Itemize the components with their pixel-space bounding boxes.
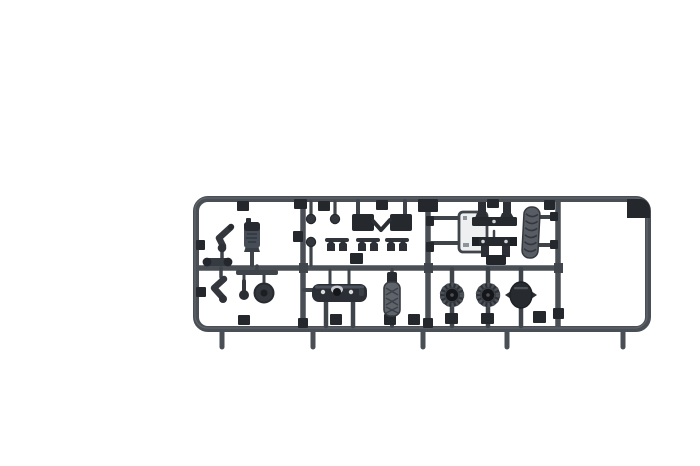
photo-background (0, 0, 700, 466)
photo-canvas: Dark grey plastic scale-model sprue (inj… (0, 0, 700, 466)
part-roller-bar (203, 258, 233, 267)
part-cylindrical-housing (244, 218, 260, 252)
part-hanger-bar-with-pin-and-wheel (236, 270, 278, 303)
sprue-photo (0, 0, 700, 466)
part-drive-sprocket-1 (440, 283, 464, 307)
corner-tab (627, 199, 650, 218)
part-drive-sprocket-2 (476, 283, 500, 307)
part-exhaust-pipe (522, 207, 541, 259)
part-hull-plate (312, 284, 367, 302)
